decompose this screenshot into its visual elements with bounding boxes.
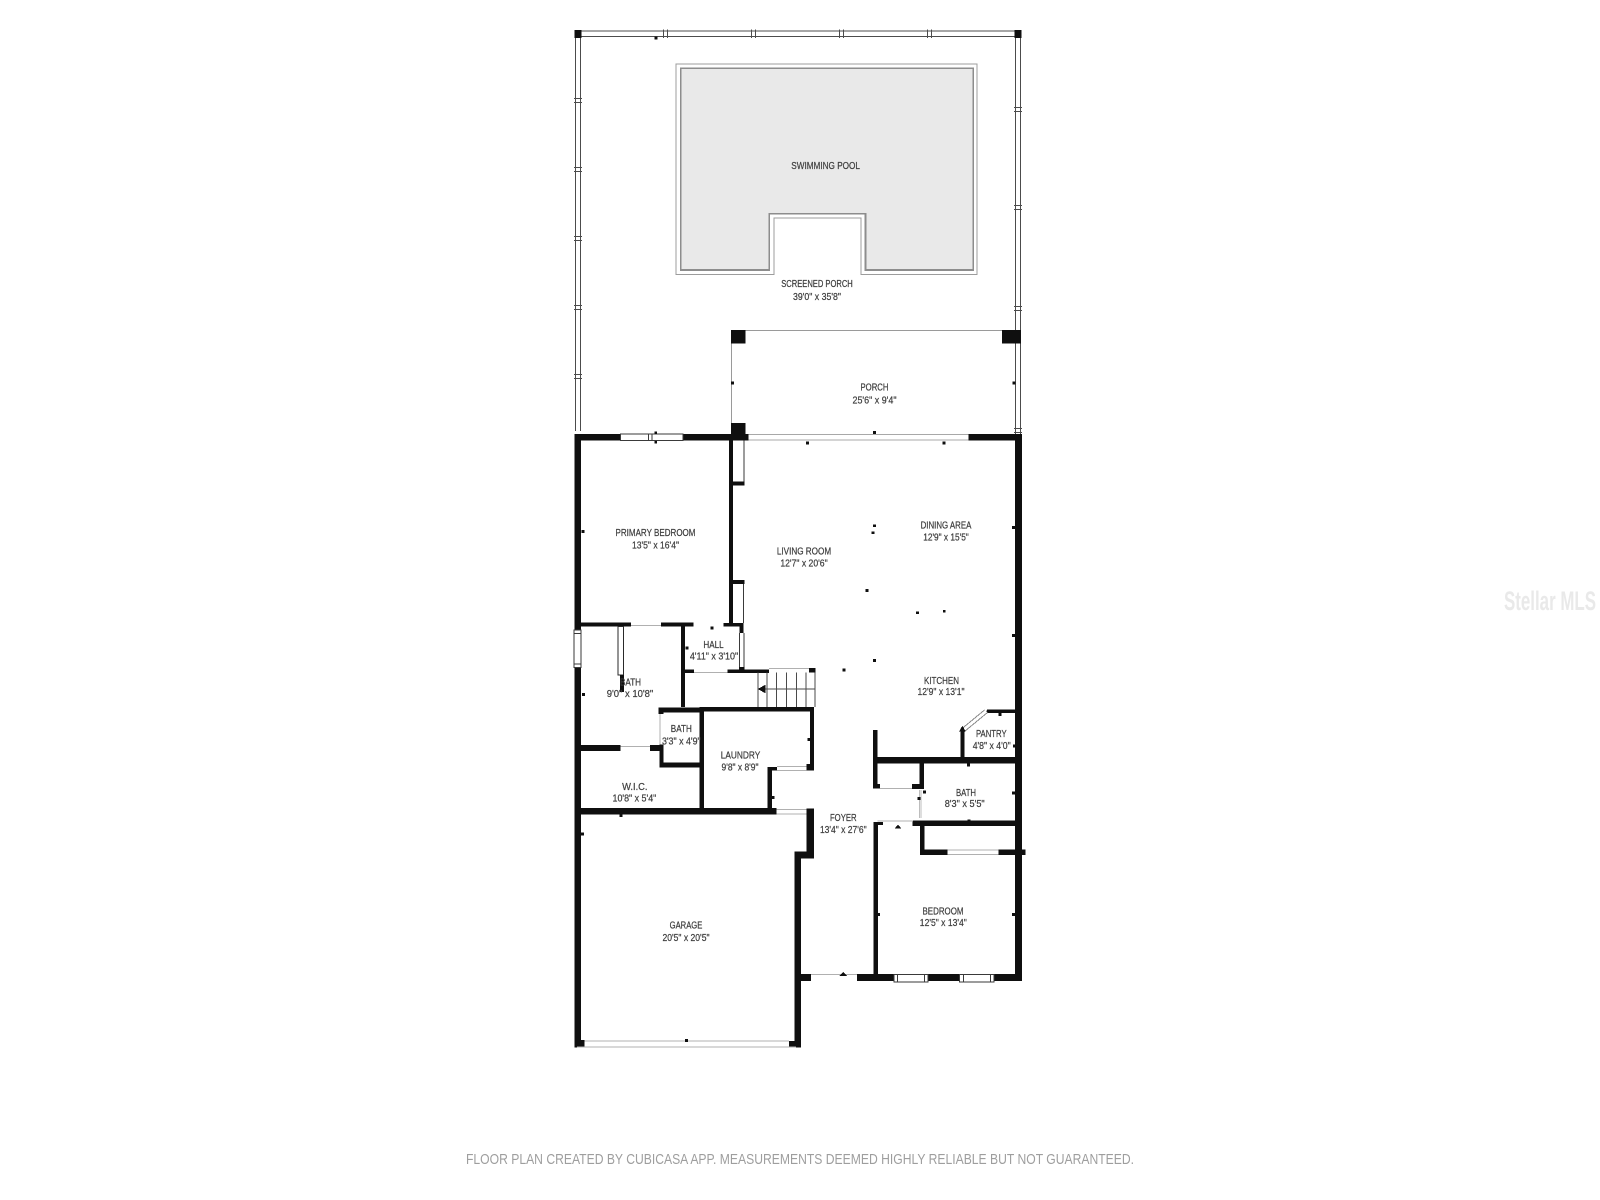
- svg-text:9'0" x 10'8": 9'0" x 10'8": [607, 689, 654, 700]
- svg-text:12'9" x 13'1": 12'9" x 13'1": [918, 687, 965, 698]
- svg-text:GARAGE: GARAGE: [670, 920, 703, 931]
- svg-text:3'3" x 4'9": 3'3" x 4'9": [662, 736, 701, 747]
- svg-text:25'6" x 9'4": 25'6" x 9'4": [853, 395, 897, 406]
- svg-text:BATH: BATH: [620, 678, 641, 689]
- svg-text:BEDROOM: BEDROOM: [923, 906, 964, 917]
- svg-text:10'8" x 5'4": 10'8" x 5'4": [613, 793, 657, 804]
- svg-text:39'0" x 35'8": 39'0" x 35'8": [793, 292, 841, 303]
- svg-text:PANTRY: PANTRY: [976, 729, 1007, 740]
- svg-text:12'7" x 20'6": 12'7" x 20'6": [780, 559, 828, 570]
- svg-text:13'5" x 16'4": 13'5" x 16'4": [632, 540, 679, 551]
- svg-text:8'3" x 5'5": 8'3" x 5'5": [945, 799, 985, 810]
- svg-text:KITCHEN: KITCHEN: [924, 676, 959, 687]
- svg-text:PRIMARY BEDROOM: PRIMARY BEDROOM: [616, 528, 696, 539]
- svg-text:Stellar MLS: Stellar MLS: [1504, 586, 1596, 616]
- svg-text:LIVING ROOM: LIVING ROOM: [777, 547, 831, 558]
- svg-text:PORCH: PORCH: [861, 383, 889, 394]
- svg-text:W.I.C.: W.I.C.: [622, 782, 647, 793]
- svg-text:BATH: BATH: [671, 724, 692, 735]
- svg-text:12'9" x 15'5": 12'9" x 15'5": [923, 533, 969, 544]
- svg-text:SCREENED PORCH: SCREENED PORCH: [781, 279, 853, 290]
- svg-text:LAUNDRY: LAUNDRY: [721, 750, 761, 761]
- svg-text:DINING AREA: DINING AREA: [921, 520, 972, 531]
- svg-text:BATH: BATH: [956, 788, 976, 799]
- svg-text:FLOOR PLAN CREATED BY CUBICASA: FLOOR PLAN CREATED BY CUBICASA APP. MEAS…: [466, 1152, 1134, 1168]
- svg-text:4'11" x 3'10": 4'11" x 3'10": [690, 652, 739, 663]
- svg-text:4'8" x 4'0": 4'8" x 4'0": [973, 741, 1011, 752]
- svg-text:20'5" x 20'5": 20'5" x 20'5": [663, 933, 710, 944]
- svg-text:HALL: HALL: [703, 640, 723, 651]
- svg-text:SWIMMING POOL: SWIMMING POOL: [791, 161, 860, 172]
- svg-text:12'5" x 13'4": 12'5" x 13'4": [920, 918, 967, 929]
- svg-text:9'8" x 8'9": 9'8" x 8'9": [722, 763, 759, 774]
- svg-text:FOYER: FOYER: [830, 813, 857, 824]
- svg-text:13'4" x 27'6": 13'4" x 27'6": [820, 825, 867, 836]
